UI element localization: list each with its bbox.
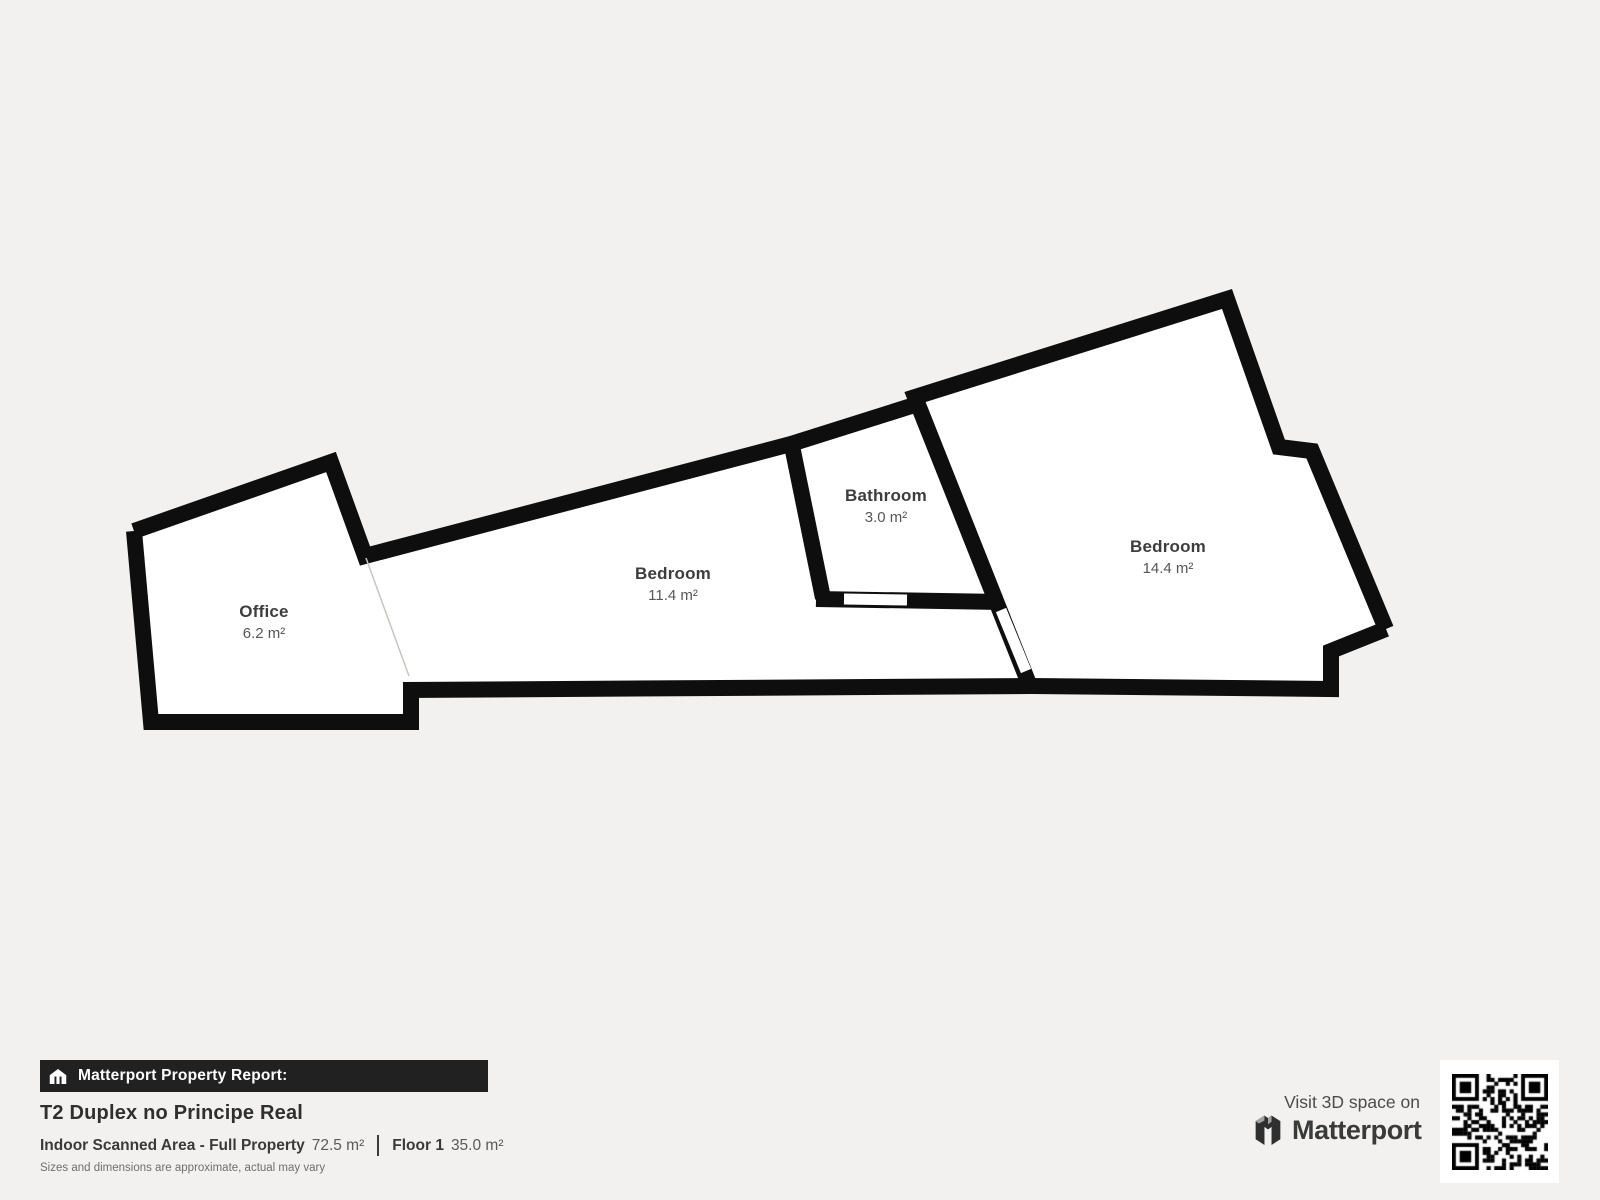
area-summary: Indoor Scanned Area - Full Property 72.5… (40, 1135, 504, 1156)
room-floors (134, 296, 1384, 714)
room-label-office: Office 6.2 m² (239, 602, 288, 643)
qr-code[interactable] (1452, 1074, 1548, 1170)
house-icon (49, 1068, 67, 1085)
qr-box (1440, 1060, 1559, 1183)
summary-divider (377, 1135, 379, 1156)
property-title: T2 Duplex no Principe Real (40, 1102, 303, 1125)
scanned-area-value: 72.5 m² (312, 1137, 365, 1155)
bathroom-door-opening (844, 599, 907, 600)
room-name: Bedroom (635, 564, 711, 584)
matterport-logo[interactable]: Matterport (1253, 1114, 1422, 1146)
report-banner: Matterport Property Report: (40, 1060, 488, 1092)
room-name: Bedroom (1130, 537, 1206, 557)
room-name: Bathroom (845, 486, 927, 506)
room-label-bathroom: Bathroom 3.0 m² (845, 486, 927, 527)
property-report-page: Office 6.2 m² Bedroom 11.4 m² Bathroom 3… (0, 0, 1600, 1200)
office-floor (134, 461, 409, 714)
room-area: 14.4 m² (1130, 560, 1206, 578)
floorplan-canvas (0, 0, 1600, 1200)
room-area: 3.0 m² (845, 509, 927, 527)
scanned-area-label: Indoor Scanned Area - Full Property (40, 1137, 305, 1155)
bathroom-bottom-wall (816, 599, 1002, 602)
room-area: 6.2 m² (239, 625, 288, 643)
floor-value: 35.0 m² (451, 1137, 504, 1155)
visit-3d-text: Visit 3D space on (1284, 1092, 1420, 1113)
matterport-wordmark: Matterport (1292, 1115, 1422, 1146)
banner-title: Matterport Property Report: (78, 1067, 288, 1085)
room-label-bedroom-1: Bedroom 11.4 m² (635, 564, 711, 605)
room-area: 11.4 m² (635, 587, 711, 605)
disclaimer-text: Sizes and dimensions are approximate, ac… (40, 1162, 325, 1174)
room-name: Office (239, 602, 288, 622)
floor-label: Floor 1 (392, 1137, 444, 1155)
matterport-m-icon (1253, 1114, 1283, 1146)
room-label-bedroom-2: Bedroom 14.4 m² (1130, 537, 1206, 578)
